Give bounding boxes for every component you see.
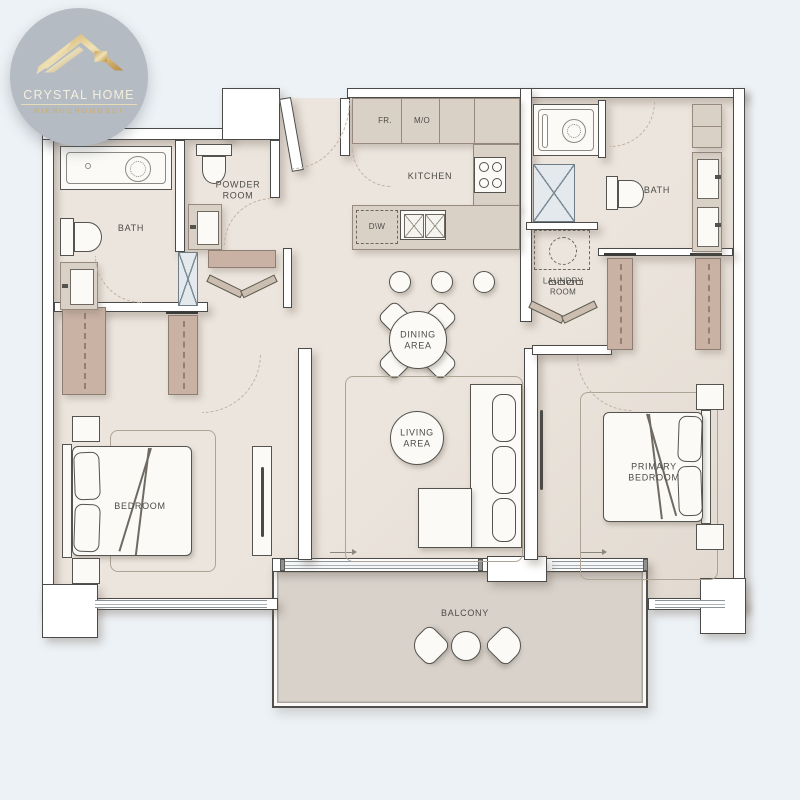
bedroom-tv-console [252, 446, 272, 556]
wall-tub-right [598, 100, 606, 158]
stove-icon [474, 157, 506, 193]
bedroom-nightstand-1 [72, 416, 100, 442]
wall-bath-powder [175, 140, 185, 252]
logo-subtitle: NIERUCHOMOŚCI [10, 108, 148, 115]
dishwasher-label: D\W [369, 222, 385, 233]
bar-stool-1-icon [389, 271, 411, 293]
vanity-powder-icon [188, 204, 222, 250]
wardrobe-bedroom-right [168, 315, 198, 395]
balcony-label: BALCONY [441, 608, 489, 619]
primary-tv-icon [540, 410, 543, 490]
laundry-bifold-door-icon [530, 298, 596, 324]
rail-cap-1 [604, 253, 636, 256]
primary-pillow-2-icon [677, 466, 703, 517]
washer-icon [534, 230, 590, 270]
house-roof-icon [29, 28, 129, 86]
shaft-right-icon [533, 164, 575, 222]
wall-closet-side [283, 248, 292, 308]
corner-block-bottom-left [42, 584, 98, 638]
bedroom-nightstand-2 [72, 558, 100, 584]
balcony-table-icon [451, 631, 481, 661]
wall-left [42, 128, 54, 610]
door-cap-1 [280, 559, 285, 571]
primary-nightstand-2 [696, 524, 724, 550]
bar-stool-3-icon [473, 271, 495, 293]
bath-right-label: BATH [644, 185, 670, 196]
wardrobe-primary-right [695, 258, 721, 350]
wall-bedroom-living [298, 348, 312, 560]
living-area-label: LIVING AREA [400, 428, 434, 449]
bedroom-headboard-icon [62, 444, 72, 558]
shower-head-icon [125, 156, 151, 182]
toilet-right-tank-icon [606, 176, 618, 210]
primary-pillow-1-icon [677, 416, 703, 463]
bathtub-left-icon [60, 146, 172, 190]
wall-primary-top [532, 345, 612, 355]
bedroom-pillow-2-icon [73, 504, 101, 553]
wardrobe-bedroom-left [62, 307, 106, 395]
wall-top [347, 88, 745, 98]
vanity-double-icon [692, 152, 722, 252]
crystal-home-logo: CRYSTAL HOME NIERUCHOMOŚCI [10, 8, 148, 146]
toilet-right-bowl-icon [618, 180, 644, 208]
sofa-cushion-3-icon [492, 498, 516, 542]
balcony-sliding-door-left [284, 561, 480, 569]
shaft-left-icon [178, 252, 198, 306]
logo-title: CRYSTAL HOME [10, 88, 148, 102]
toilet-powder-tank-icon [196, 144, 232, 156]
primary-window [655, 600, 725, 608]
sofa-cushion-1-icon [492, 394, 516, 442]
wall-living-primary [524, 348, 538, 560]
wall-laundry-top [526, 222, 598, 230]
floor-plan-page: { "logo": { "title": "CRYSTAL HOME", "su… [0, 0, 800, 800]
bar-stool-2-icon [431, 271, 453, 293]
bedroom-pillow-1-icon [73, 452, 101, 501]
entry-closet-shelf [208, 250, 276, 268]
bathtub-right-icon [533, 104, 599, 156]
laundry-room-label: LAUNDRY ROOM [543, 277, 583, 298]
entry-closet-bifold-door-icon [208, 272, 276, 300]
bath-left-label: BATH [118, 223, 144, 234]
tv-icon [261, 467, 264, 537]
rail-cap-2 [690, 253, 722, 256]
kitchen-label: KITCHEN [408, 171, 452, 182]
sofa-chaise-icon [418, 488, 472, 548]
toilet-left-tank-icon [60, 218, 74, 256]
vanity-left-icon [60, 262, 98, 310]
primary-bedroom-label: PRIMARY BEDROOM [628, 462, 679, 483]
primary-nightstand-1 [696, 384, 724, 410]
microwave-oven-label: M/O [414, 116, 430, 127]
wall-powder-right [270, 140, 280, 198]
dining-area-label: DINING AREA [400, 330, 436, 351]
bedroom-label: BEDROOM [114, 501, 165, 512]
kitchen-sink-icon [400, 210, 446, 240]
drain-spiral-icon [562, 119, 586, 143]
wall-kitchen-right [520, 88, 532, 322]
rail-cap-3 [166, 311, 198, 314]
toilet-left-bowl-icon [74, 222, 102, 252]
powder-room-label: POWDER ROOM [216, 180, 261, 201]
wardrobe-primary-left [607, 258, 633, 350]
wall-entry-block [222, 88, 280, 140]
sofa-cushion-2-icon [492, 446, 516, 494]
wall-right [733, 88, 745, 610]
fridge-label: FR. [378, 116, 392, 127]
bedroom-window [95, 600, 267, 608]
bath-right-cabinet [692, 104, 722, 148]
